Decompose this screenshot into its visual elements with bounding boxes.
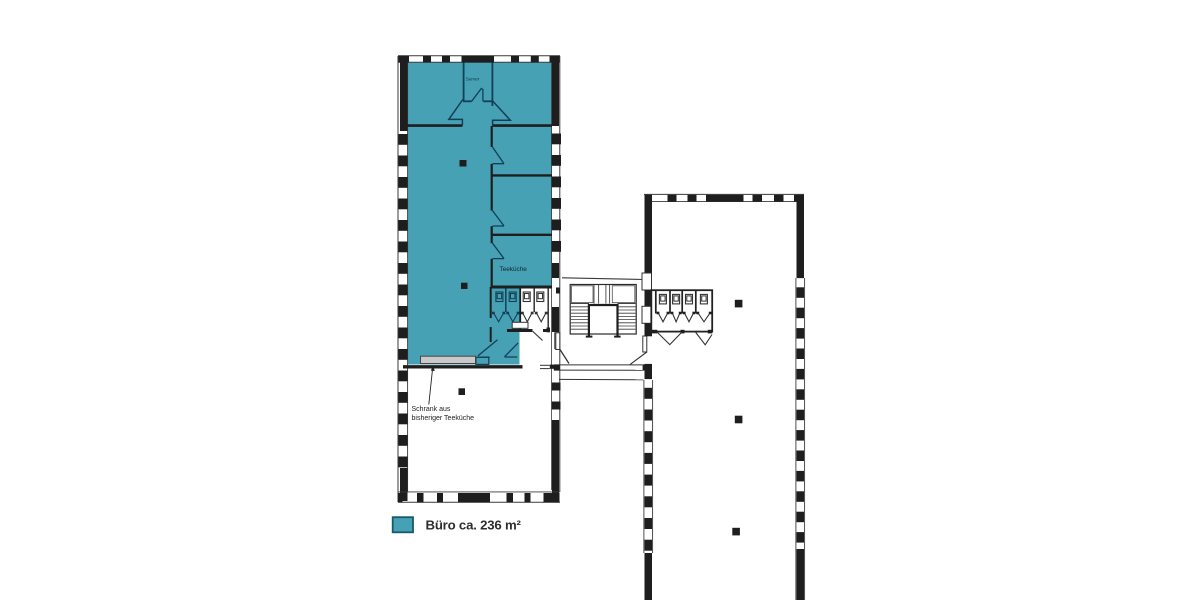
svg-text:bisheriger Teeküche: bisheriger Teeküche (412, 415, 475, 422)
svg-text:Schrank aus: Schrank aus (412, 406, 451, 413)
svg-text:Server: Server (466, 76, 480, 81)
svg-text:Teeküche: Teeküche (500, 266, 528, 273)
svg-text:Büro ca. 236 m²: Büro ca. 236 m² (426, 518, 522, 533)
